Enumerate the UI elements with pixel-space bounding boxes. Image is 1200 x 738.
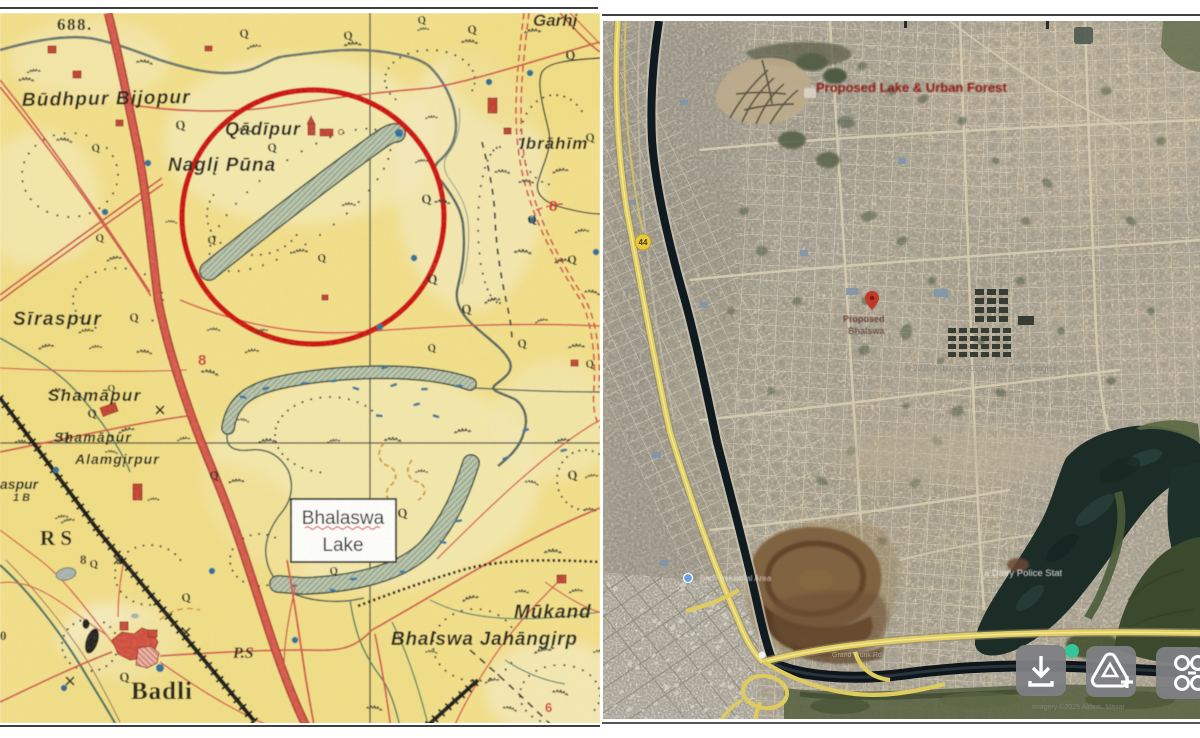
svg-text:44: 44 bbox=[639, 238, 648, 247]
svg-text:© 2025 Airbus © 2025 Maxar T: © 2025 Airbus © 2025 Maxar Technologies bbox=[905, 364, 1057, 373]
svg-text:Imagery ©2025 Airbus, Maxar: Imagery ©2025 Airbus, Maxar bbox=[1032, 703, 1125, 711]
svg-text:Proposed Lake & Urban Forest: Proposed Lake & Urban Forest bbox=[816, 80, 1007, 95]
svg-text:Grand Trunk Rd: Grand Trunk Rd bbox=[832, 652, 882, 659]
svg-text:Badli Industrial Area: Badli Industrial Area bbox=[700, 574, 772, 583]
svg-text:a Dairy Police Stat: a Dairy Police Stat bbox=[984, 568, 1063, 579]
svg-text:Proposed: Proposed bbox=[843, 314, 885, 324]
svg-text:Bhalswa: Bhalswa bbox=[848, 326, 886, 336]
